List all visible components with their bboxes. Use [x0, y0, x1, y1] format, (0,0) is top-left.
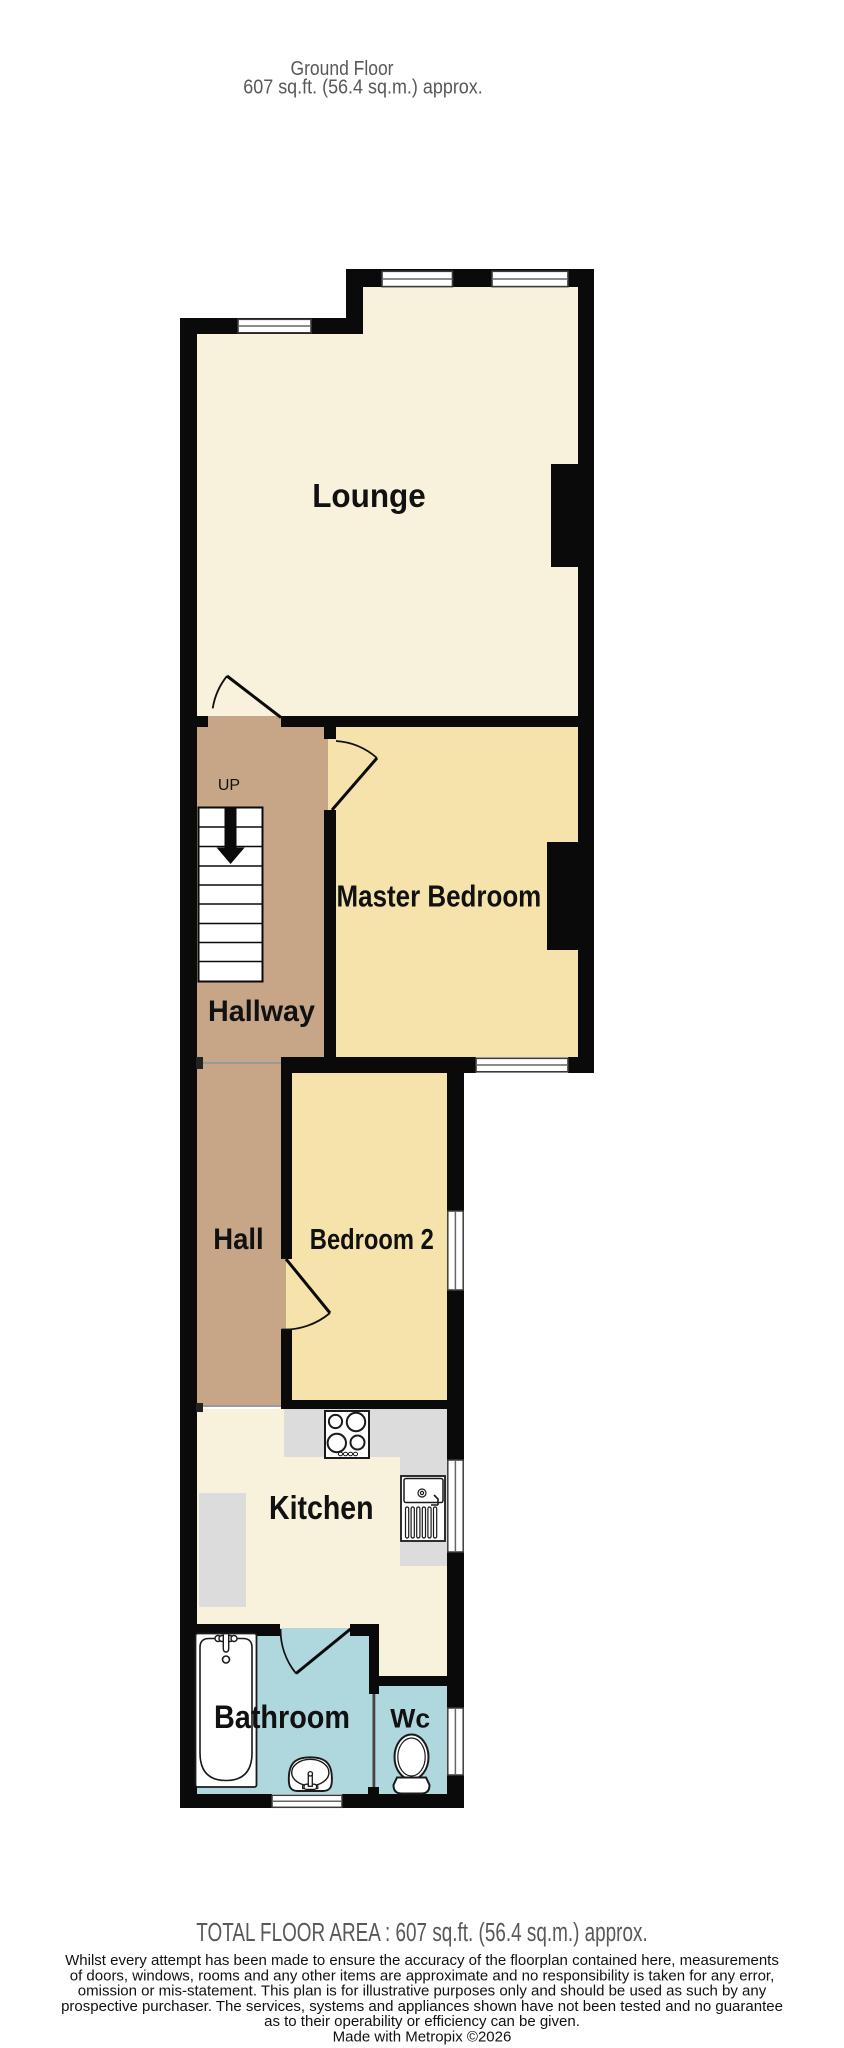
svg-text:607 sq.ft. (56.4 sq.m.) approx: 607 sq.ft. (56.4 sq.m.) approx. [243, 77, 483, 99]
svg-text:Bathroom: Bathroom [214, 1699, 350, 1735]
svg-text:UP: UP [218, 777, 240, 794]
svg-text:Hallway: Hallway [208, 995, 315, 1028]
svg-text:Hall: Hall [213, 1223, 263, 1256]
svg-text:as to their operability or eff: as to their operability or efficiency ca… [264, 2013, 580, 2030]
svg-text:Bedroom 2: Bedroom 2 [310, 1224, 434, 1256]
svg-text:TOTAL FLOOR AREA : 607 sq.ft.: TOTAL FLOOR AREA : 607 sq.ft. (56.4 sq.m… [196, 1919, 647, 1947]
svg-text:Master Bedroom: Master Bedroom [337, 879, 542, 914]
svg-text:Lounge: Lounge [312, 477, 426, 514]
svg-text:omission or mis-statement. Thi: omission or mis-statement. This plan is … [78, 1982, 767, 1999]
svg-text:Made with Metropix ©2026: Made with Metropix ©2026 [333, 2029, 512, 2046]
svg-text:Wc: Wc [390, 1704, 430, 1734]
svg-text:Kitchen: Kitchen [269, 1489, 374, 1526]
